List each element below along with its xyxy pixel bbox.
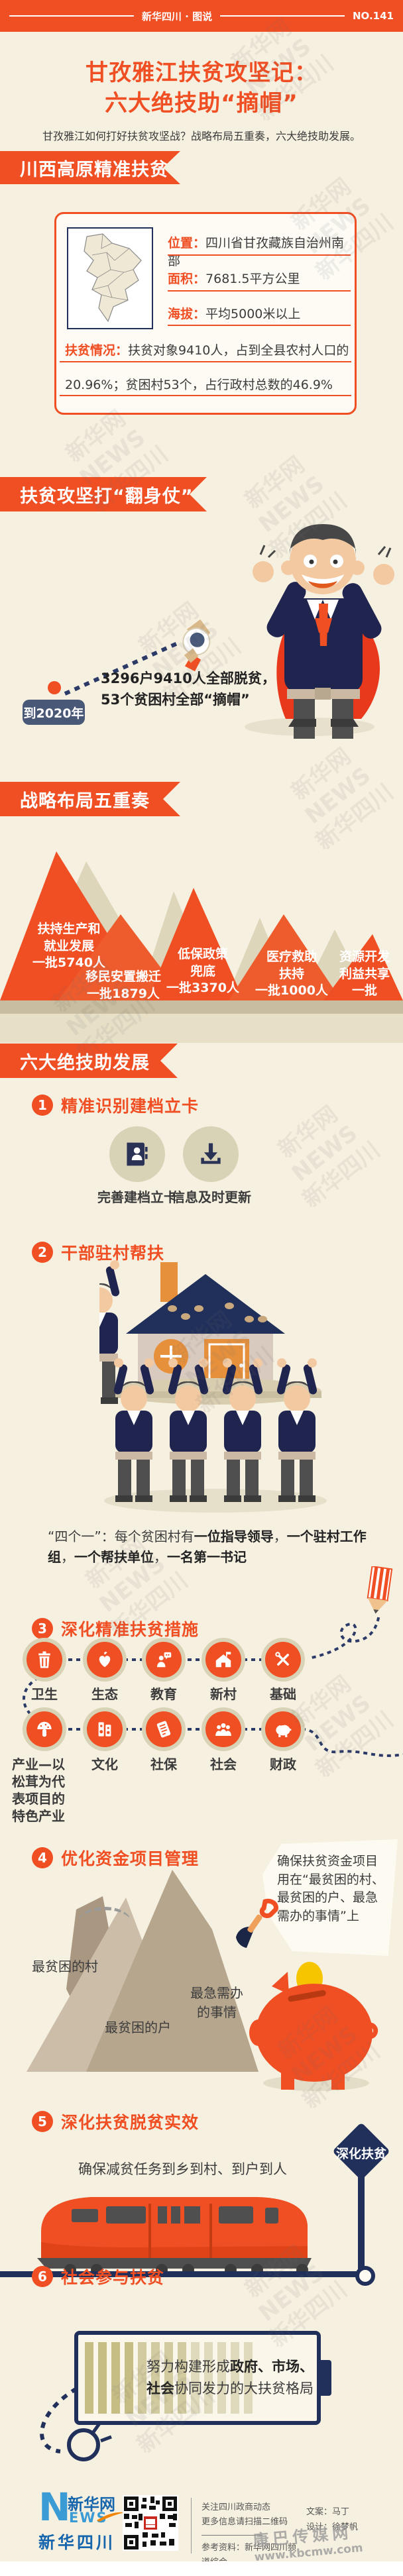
credit-writer: 文案：马丁 — [306, 2504, 358, 2520]
note-bold: 一位指导领导 — [194, 1529, 274, 1544]
poverty-line2: 20.96%；贫困村53个，占行政村总数的46.9% — [65, 375, 354, 393]
people-icon — [205, 1711, 241, 1747]
map-outline — [68, 229, 152, 328]
measure3-label: 教育 — [134, 1686, 194, 1703]
issue-number: NO.141 — [353, 10, 394, 22]
banner-six-measures: 六大绝技助发展 — [0, 1044, 178, 1078]
mushroom-icon — [27, 1711, 62, 1747]
measure3-label: 产业—以 松茸为代 表项目的 特色产业 — [12, 1756, 78, 1825]
banner-label: 六大绝技助发展 — [20, 1048, 150, 1074]
education-circle — [142, 1638, 186, 1682]
download-update-icon — [183, 1126, 239, 1182]
train-illustration — [32, 2184, 317, 2277]
sign-label: 深化扶贫 — [334, 2144, 388, 2162]
industry-circle — [23, 1707, 66, 1751]
archive-card-icon — [109, 1126, 165, 1182]
infrastructure-circle — [261, 1638, 305, 1682]
ground-band-light — [0, 1014, 403, 1043]
area-value: 7681.5平方公里 — [205, 272, 300, 286]
rule — [168, 325, 351, 326]
qr-note1: 关注四川政商动态 — [201, 2500, 301, 2515]
year-badge: 到2020年 — [23, 700, 85, 725]
start-pin — [48, 681, 61, 694]
xinhua-logo: N 新华网 EWS 新华四川 — [38, 2490, 125, 2553]
header-bar: 新华四川 · 图说 NO.141 — [0, 0, 403, 32]
banner-label: 扶贫攻坚打“翻身仗” — [20, 482, 194, 508]
dig-arc-dashes — [78, 1907, 131, 1938]
update-label: 信息及时更新 — [166, 1189, 257, 1206]
note-text: ， — [61, 1549, 74, 1565]
measure3-label: 生态 — [75, 1686, 135, 1703]
logo-region: 新华四川 — [38, 2530, 115, 2553]
watermark: 新华网 NEWS 新华四川 — [256, 719, 403, 873]
measure1-title: 精准识别建档立卡 — [61, 1093, 199, 1117]
county-map — [67, 227, 153, 329]
measure3-label: 财政 — [253, 1756, 313, 1773]
banner-strategy: 战略布局五重奏 — [0, 782, 180, 816]
rule — [60, 395, 351, 396]
pencil-icon — [363, 1566, 395, 1619]
note-text: “四个一”：每个贫困村有 — [48, 1529, 194, 1544]
banner-precision-poverty: 川西高原精准扶贫 — [0, 151, 180, 184]
house-carry-illustration — [99, 1256, 331, 1521]
urgent-matters-label: 最急需办 的事情 — [180, 1982, 253, 2021]
area-label: 面积 — [168, 272, 193, 286]
colon: ： — [115, 343, 128, 358]
info-row-location: 位置：四川省甘孜藏族自治州南部 — [168, 233, 351, 269]
teacher-icon — [146, 1642, 182, 1678]
peak-label-5: 资源开发 利益共享 一批 — [330, 949, 399, 1000]
peak-label-1: 扶持生产和 就业发展 一批5740人 — [19, 921, 119, 972]
info-row-altitude: 海拔：平均5000米以上 — [168, 304, 351, 322]
peak-label-4: 医疗救助 扶持 一批1000人 — [253, 949, 330, 1000]
finance-circle — [261, 1707, 305, 1751]
battery-text: 努力构建形成政府、市场、社会协同发力的大扶贫格局 — [144, 2356, 316, 2399]
measure5-title: 深化扶贫脱贫实效 — [61, 2110, 199, 2133]
note-bold: 一名第一书记 — [167, 1549, 247, 1565]
altitude-value: 平均5000米以上 — [205, 307, 300, 321]
poverty-label: 扶贫情况 — [65, 343, 115, 358]
measure3-label: 新村 — [194, 1686, 253, 1703]
culture-circle — [83, 1707, 127, 1751]
measure6-number: 6 — [32, 2266, 53, 2287]
poverty-line1: 扶贫对象9410人，占到全县农村人口的 — [128, 343, 349, 358]
bottom-margin — [0, 2561, 403, 2576]
society-circle — [201, 1707, 245, 1751]
location-label: 位置 — [168, 236, 193, 250]
footer-divider — [191, 2498, 192, 2553]
colon: ： — [193, 272, 205, 286]
measure4-number: 4 — [32, 1847, 53, 1868]
info-row-area: 面积：7681.5平方公里 — [168, 269, 351, 287]
banner-turnaround: 扶贫攻坚打“翻身仗” — [0, 477, 207, 511]
ground-band-dark — [0, 1000, 403, 1014]
measure2-number: 2 — [32, 1242, 53, 1263]
watermark: 新华网 NEWS 新华四川 — [243, 1077, 403, 1230]
poorest-village-label: 最贫困的村 — [32, 1956, 98, 1975]
tools-icon — [265, 1642, 301, 1678]
battery-terminal — [321, 2360, 331, 2396]
qr-code — [123, 2495, 178, 2551]
shovel-icon — [227, 1896, 284, 1960]
banner-label: 川西高原精准扶贫 — [20, 155, 168, 181]
page-subtitle: 甘孜雅江如何打好扶贫攻坚战？战略布局五重奏，六大绝技助发展。 — [0, 127, 403, 143]
measure5-note: 确保减贫任务到乡到村、到户到人 — [78, 2159, 357, 2178]
altitude-label: 海拔 — [168, 307, 193, 321]
header-rule-right — [220, 15, 345, 17]
infographic-page: 新华网 NEWS 新华四川 新华网 NEWS 新华四川 新华网 NEWS 新华四… — [0, 0, 403, 2576]
header-rule-left — [9, 15, 134, 17]
measure6-heading: 6 社会参与扶贫 — [32, 2265, 164, 2288]
rule — [60, 361, 351, 362]
social-security-circle — [142, 1707, 186, 1751]
note-bold: 一个帮扶单位 — [74, 1549, 154, 1565]
measure3-label: 文化 — [75, 1756, 135, 1773]
battery-text-bold: 社会 — [146, 2381, 174, 2396]
page-title-line2: 六大绝技助“摘帽” — [0, 85, 403, 117]
measure3-label: 社保 — [134, 1756, 194, 1773]
info-row-poverty: 扶贫情况：扶贫对象9410人，占到全县农村人口的 — [65, 341, 354, 358]
sign-pole — [358, 2177, 365, 2270]
note-text: ， — [274, 1529, 287, 1544]
health-circle — [23, 1638, 66, 1682]
measure5-number: 5 — [32, 2111, 53, 2132]
logo-swoosh — [95, 2510, 126, 2523]
page-title-line1: 甘孜雅江扶贫攻坚记： — [0, 54, 403, 87]
plug-cord — [24, 2385, 143, 2478]
rule — [168, 254, 351, 256]
peak-label-2: 移民安置搬迁 一批1879人 — [73, 969, 174, 1002]
poorest-household-label: 最贫困的户 — [105, 2017, 171, 2036]
peak-label-3: 低保政策 兜底 一批3370人 — [166, 946, 240, 997]
rule — [168, 290, 351, 292]
logo-n: N — [38, 2485, 71, 2530]
leaf-heart-icon — [87, 1642, 123, 1678]
funds-bubble-text: 确保扶贫资金项目 用在“最贫困的村、 最贫困的户、最急 需办的事情”上 — [277, 1852, 390, 1925]
piggy-bank — [247, 1953, 379, 2094]
goal-line2: 53个贫困村全部“摘帽” — [101, 689, 250, 709]
four-one-note: “四个一”：每个贫困村有一位指导领导，一个驻村工作组，一个帮扶单位，一名第一书记 — [48, 1527, 382, 1568]
scroll-icon — [146, 1711, 182, 1747]
note-text: ， — [154, 1549, 167, 1565]
eco-circle — [83, 1638, 127, 1682]
piggy-bank-icon — [265, 1711, 301, 1747]
colon: ： — [193, 307, 205, 321]
goal-line1: 3296户9410人全部脱贫， — [101, 668, 276, 688]
measure1-heading: 1 精准识别建档立卡 — [32, 1093, 199, 1117]
battery-text-run: 协同发力的大扶贫格局 — [174, 2381, 314, 2396]
village-circle — [201, 1638, 245, 1682]
measure4-heading: 4 优化资金项目管理 — [32, 1846, 199, 1870]
measure4-title: 优化资金项目管理 — [61, 1846, 199, 1870]
measure6-title: 社会参与扶贫 — [61, 2265, 164, 2288]
colon: ： — [193, 236, 205, 250]
banner-label: 战略布局五重奏 — [20, 786, 150, 812]
battery-text-bold: 政府、市场、 — [230, 2359, 314, 2375]
measure3-label: 社会 — [194, 1756, 253, 1773]
measure3-label: 基础 — [253, 1686, 313, 1703]
brand-label: 新华四川 · 图说 — [142, 9, 212, 23]
measure1-number: 1 — [32, 1095, 53, 1116]
battery-text-run: 努力构建形成 — [146, 2359, 230, 2375]
trash-icon — [27, 1642, 62, 1678]
measure5-heading: 5 深化扶贫脱贫实效 — [32, 2110, 199, 2133]
speakers-icon — [87, 1711, 123, 1747]
measure3-label: 卫生 — [15, 1686, 74, 1703]
house-flag-icon — [205, 1642, 241, 1678]
